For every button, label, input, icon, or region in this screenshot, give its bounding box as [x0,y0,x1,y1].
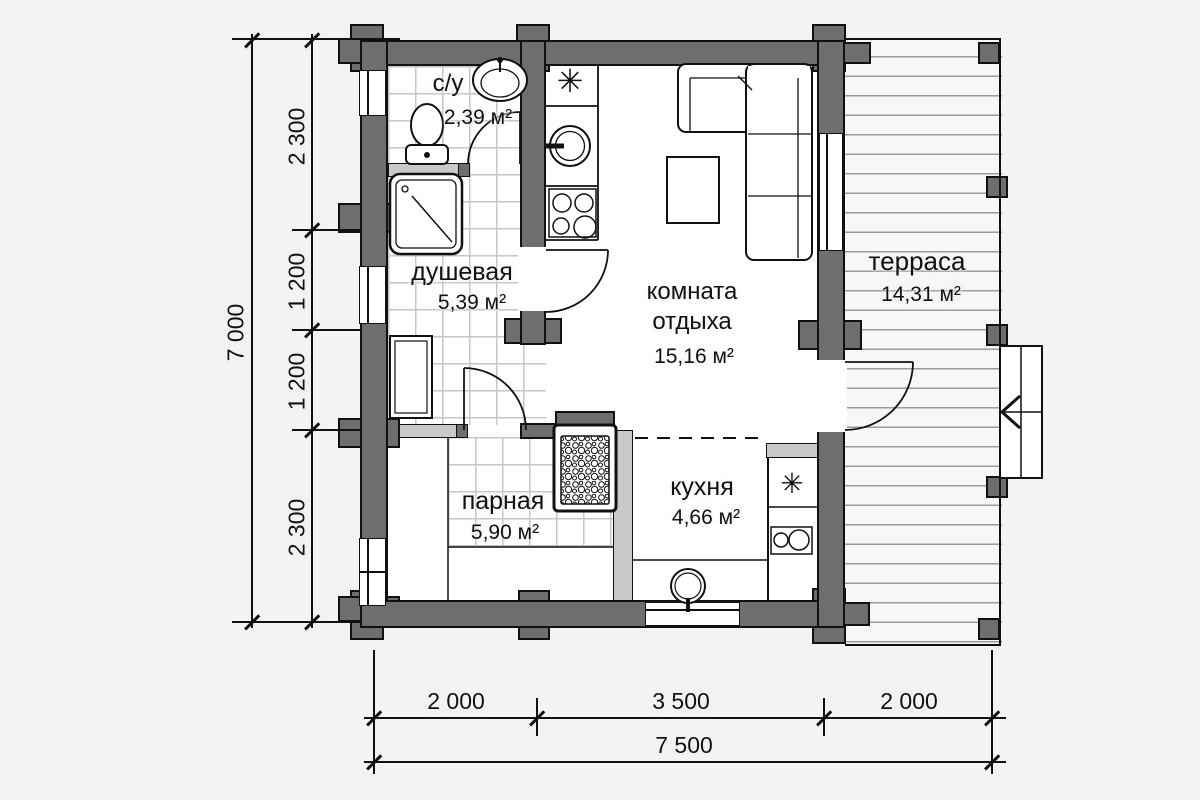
door-gap-terrace [815,360,847,432]
dim-label-bottom-total: 7 500 [634,732,734,759]
dim-label-bottom-seg-1: 3 500 [631,688,731,715]
dim-label-bottom-seg-2: 2 000 [859,688,959,715]
terrace-post [986,476,1008,498]
room-label-terrace: терраса [837,246,997,277]
window-kitchen [645,602,740,626]
dim-label-left-seg-1: 1 200 [284,237,311,327]
room-area-lounge: 15,16 м² [624,345,764,369]
wall-right [817,40,845,628]
window-shower [359,266,386,324]
terrace-post [978,42,1000,64]
dim-label-left-seg-3: 2 300 [284,483,311,573]
room-area-kitchen: 4,66 м² [641,506,771,530]
terrace-deck [845,38,1002,646]
room-label-sauna: парная [433,487,573,516]
dim-label-bottom-seg-0: 2 000 [406,688,506,715]
partition-bathroom-end [458,163,470,177]
log-end [843,42,871,64]
extension-line [292,329,360,331]
extension-line [991,650,993,774]
terrace-post [986,324,1008,346]
room-area-sauna: 5,90 м² [440,521,570,545]
floor-plan: ✳ ✳ с/у 2,39 м² душевая 5,39 м² комната … [0,0,1200,800]
wall-top [360,40,845,66]
room-label-lounge-2: отдыха [612,308,772,336]
dim-line-bottom-total [364,761,1006,763]
terrace-stairs [1000,346,1042,478]
room-area-shower: 5,39 м² [412,291,532,315]
dim-label-left-seg-2: 1 200 [284,337,311,427]
dim-label-left-total: 7 000 [223,288,250,378]
terrace-post [978,618,1000,640]
room-label-lounge-1: комната [612,278,772,306]
room-label-kitchen: кухня [642,473,762,502]
extension-line [292,429,360,431]
kitchen-counter-band [766,443,818,458]
fridge-icon: ✳ [552,64,588,100]
extension-line [292,229,360,231]
room-area-terrace: 14,31 м² [846,283,996,307]
partition-bathroom [388,163,462,177]
window-lounge-terrace [819,133,843,251]
wall-interior-sauna [520,423,562,439]
dim-line-left-total [251,34,253,628]
extension-line [373,650,375,774]
partition-kitchen-left [613,430,633,614]
room-label-bathroom: с/у [408,70,488,98]
partition-anteroom-end [456,424,468,438]
terrace-post [986,176,1008,198]
dim-line-bottom-segments [364,717,1006,719]
room-label-shower: душевая [392,258,532,287]
fridge-icon: ✳ [776,469,808,501]
window-sauna [359,538,386,606]
room-area-bathroom: 2,39 м² [418,106,538,130]
dim-label-left-seg-0: 2 300 [284,92,311,182]
wall-bottom [360,600,845,628]
window-bathroom [359,70,386,116]
